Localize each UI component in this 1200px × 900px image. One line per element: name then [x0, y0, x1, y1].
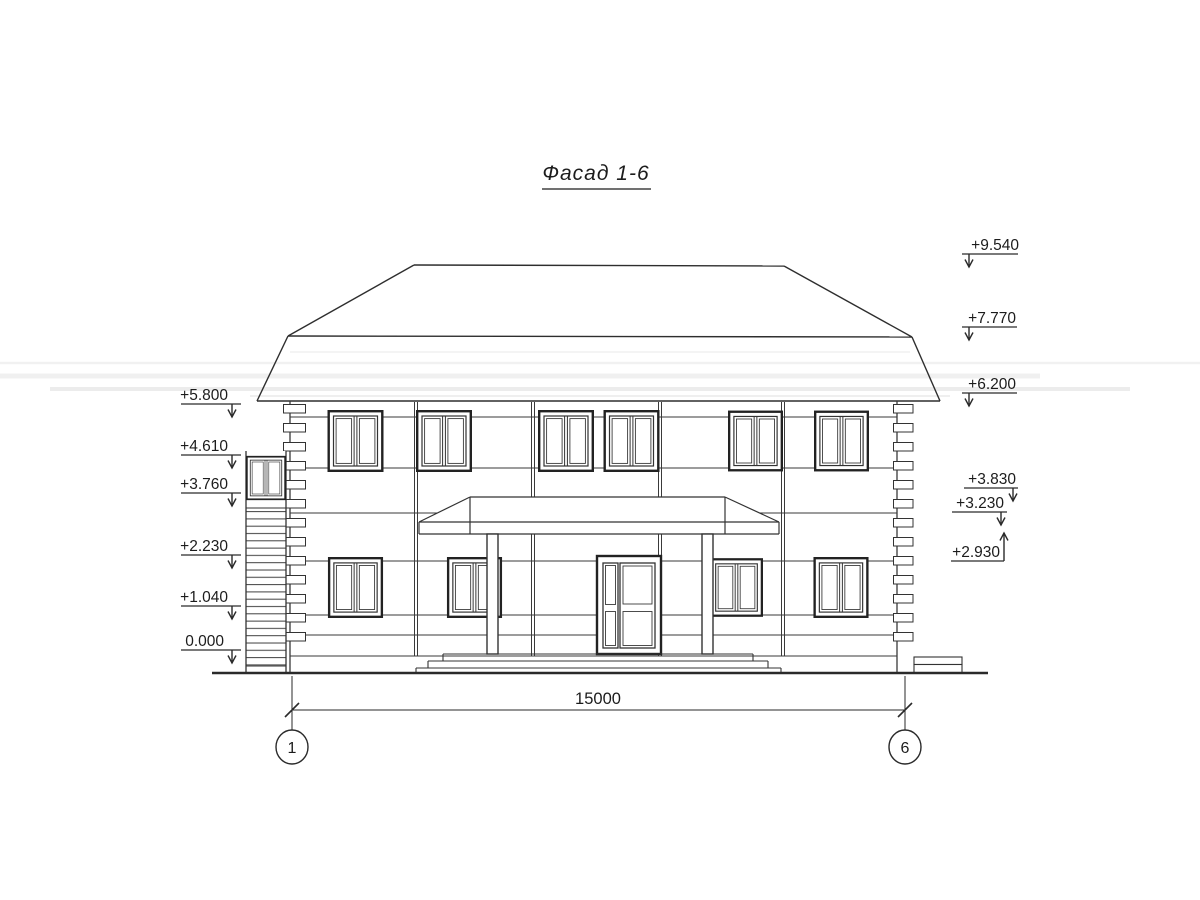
right-corner-quoins	[893, 404, 914, 651]
elevation-arrow-icon	[228, 650, 236, 663]
elevation-value: +7.770	[968, 310, 1016, 327]
elevation-value: +2.230	[180, 538, 228, 555]
elevation-mark: +3.230	[952, 495, 1007, 525]
canopy-column-right	[702, 534, 713, 654]
elevation-arrow-icon	[965, 393, 973, 406]
roof	[257, 265, 940, 401]
facade-elevation-drawing: +5.800 +4.610 +3.760 +2.230 +1.040 0.000	[0, 0, 1200, 900]
axis-number-left: 1	[288, 740, 297, 757]
drawing-title: Фасад 1-6	[542, 162, 649, 185]
elevation-mark: 0.000	[181, 633, 241, 663]
elevation-value: +3.830	[968, 471, 1016, 488]
elevation-mark: +6.200	[962, 376, 1017, 406]
elevation-arrow-icon	[228, 555, 236, 568]
elevation-value: +2.930	[952, 544, 1000, 561]
canopy-column-left	[487, 534, 498, 654]
elevation-marks-left: +5.800 +4.610 +3.760 +2.230 +1.040 0.000	[180, 387, 241, 663]
elevation-mark: +5.800	[180, 387, 241, 417]
elevation-mark: +1.040	[180, 589, 241, 619]
axis-number-right: 6	[901, 740, 910, 757]
elevation-value: +3.230	[956, 495, 1004, 512]
elevation-mark: +9.540	[962, 237, 1019, 267]
upper-window-4	[605, 411, 659, 471]
elevation-arrow-icon	[965, 327, 973, 340]
upper-window-5	[729, 412, 782, 471]
roof-right-slope	[784, 266, 912, 337]
elevation-mark: +3.760	[180, 476, 241, 506]
elevation-value: +1.040	[180, 589, 228, 606]
elevation-arrow-icon	[965, 254, 973, 267]
elevation-arrow-icon	[1009, 488, 1017, 501]
ladder-rungs	[246, 511, 286, 666]
side-steps	[914, 657, 962, 673]
elevation-value: +9.540	[971, 237, 1019, 254]
elevation-value: 0.000	[185, 633, 224, 650]
scanned-drawing-sheet: +5.800 +4.610 +3.760 +2.230 +1.040 0.000	[0, 0, 1200, 900]
elevation-mark: +4.610	[180, 438, 241, 468]
elevation-arrow-icon	[228, 455, 236, 468]
elevation-mark: +2.930	[951, 533, 1008, 561]
elevation-value: +3.760	[180, 476, 228, 493]
entrance-canopy	[419, 497, 779, 534]
dimension: 15000 1 6	[276, 676, 921, 764]
title-block: Фасад 1-6	[542, 162, 651, 189]
roof-ridge	[414, 265, 784, 266]
ladder-window	[247, 457, 285, 500]
lower-window-3	[711, 559, 762, 615]
upper-window-2	[417, 411, 471, 471]
fascia-right-edge	[912, 337, 940, 401]
elevation-mark: +2.230	[180, 538, 241, 568]
upper-window-3	[539, 411, 593, 471]
elevation-value: +4.610	[180, 438, 228, 455]
roof-eave-line	[288, 336, 912, 337]
dimension-value: 15000	[575, 690, 621, 708]
roof-left-slope	[288, 265, 414, 336]
upper-window-1	[329, 411, 383, 471]
elevation-arrow-icon	[228, 493, 236, 506]
elevation-arrow-icon	[228, 606, 236, 619]
lower-window-1	[329, 558, 382, 617]
fascia-left-edge	[257, 336, 288, 401]
elevation-marks-right: +9.540 +7.770 +6.200 +3.830 +3.230 +2.93…	[951, 237, 1019, 561]
upper-window-6	[815, 412, 868, 471]
elevation-value: +6.200	[968, 376, 1016, 393]
elevation-mark: +7.770	[962, 310, 1017, 340]
lower-window-4	[815, 558, 868, 617]
upper-windows	[329, 411, 868, 471]
entrance-steps	[416, 654, 781, 673]
elevation-arrow-icon	[228, 404, 236, 417]
elevation-value: +5.800	[180, 387, 228, 404]
elevation-arrow-icon	[997, 512, 1005, 525]
entrance-door	[597, 556, 661, 654]
side-ladder	[246, 451, 286, 672]
